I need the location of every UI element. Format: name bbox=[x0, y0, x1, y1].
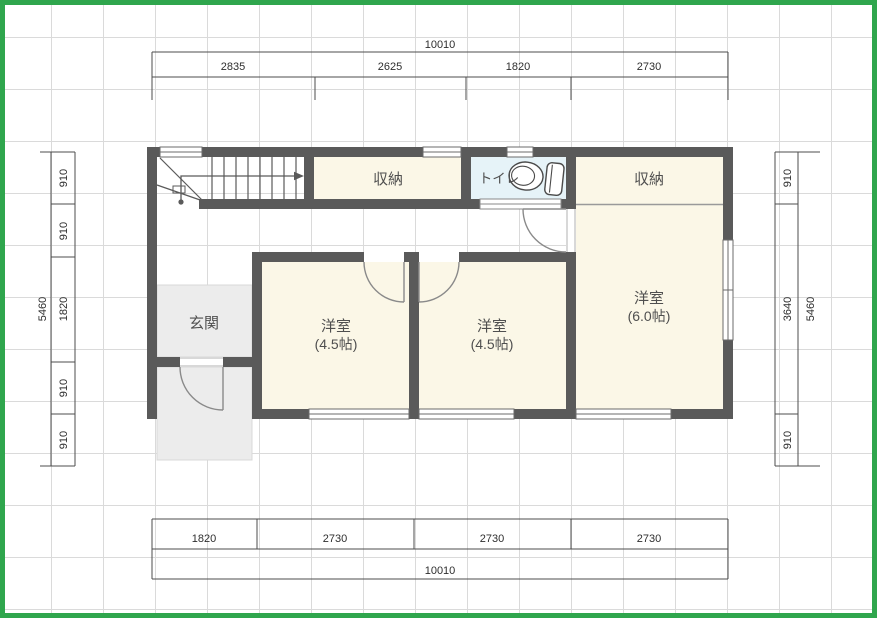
dimension-label: 10010 bbox=[425, 565, 456, 577]
room3-label: 洋室 bbox=[634, 290, 664, 307]
room2-size-label: (4.5帖) bbox=[471, 336, 514, 352]
room3-and-storage-right-area bbox=[576, 157, 723, 409]
window-stairs-top bbox=[160, 147, 202, 157]
room3-size-label: (6.0帖) bbox=[628, 308, 671, 324]
dimension-label: 5460 bbox=[805, 297, 817, 321]
dimension-label: 910 bbox=[782, 431, 794, 449]
storage-right-label: 収納 bbox=[634, 171, 664, 188]
dimension-label: 2730 bbox=[323, 533, 347, 545]
entrance-porch-area bbox=[157, 367, 252, 460]
room1-label: 洋室 bbox=[321, 318, 351, 335]
dimension-label: 2625 bbox=[378, 61, 402, 73]
dimension-label: 2730 bbox=[637, 61, 661, 73]
floor-plan-page: 収納 トイレ 収納 玄関 洋室 (4.5帖) 洋室 (4.5帖) 洋室 (6.0… bbox=[0, 0, 877, 618]
dimension-label: 910 bbox=[58, 379, 70, 397]
dimension-label: 2835 bbox=[221, 61, 245, 73]
dimension-label: 2730 bbox=[480, 533, 504, 545]
dimension-label: 1820 bbox=[192, 533, 216, 545]
toilet-label: トイレ bbox=[479, 171, 520, 186]
window-room2-bottom bbox=[419, 409, 514, 419]
window-room3-bottom bbox=[576, 409, 671, 419]
dimension-label: 1820 bbox=[506, 61, 530, 73]
window-room1-bottom bbox=[309, 409, 409, 419]
window-storage-top bbox=[423, 147, 461, 157]
door-opening-room2 bbox=[419, 252, 459, 262]
dimension-label: 1820 bbox=[58, 297, 70, 321]
window-room3-right bbox=[723, 240, 733, 340]
door-opening-room1 bbox=[364, 252, 404, 262]
dimension-label: 910 bbox=[782, 169, 794, 187]
dimension-label: 2730 bbox=[637, 533, 661, 545]
entrance-label: 玄関 bbox=[189, 315, 219, 332]
storage-left-label: 収納 bbox=[373, 171, 403, 188]
room1-size-label: (4.5帖) bbox=[315, 336, 358, 352]
dimension-label: 910 bbox=[58, 222, 70, 240]
dimension-label: 3640 bbox=[782, 297, 794, 321]
dimension-label: 910 bbox=[58, 169, 70, 187]
toilet-sliding-door bbox=[480, 199, 561, 209]
dimension-label: 910 bbox=[58, 431, 70, 449]
room2-label: 洋室 bbox=[477, 318, 507, 335]
dimension-label: 10010 bbox=[425, 39, 456, 51]
floor-plan-canvas: 収納 トイレ 収納 玄関 洋室 (4.5帖) 洋室 (4.5帖) 洋室 (6.0… bbox=[0, 0, 877, 618]
dimension-label: 5460 bbox=[37, 297, 49, 321]
window-toilet-top bbox=[507, 147, 533, 157]
